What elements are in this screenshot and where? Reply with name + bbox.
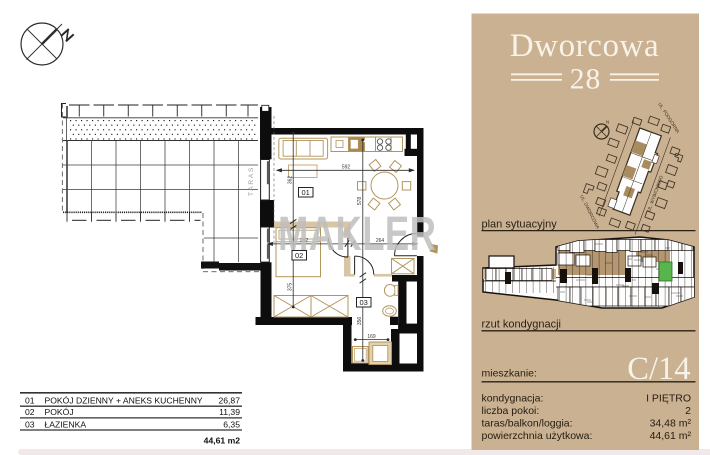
svg-text:28: 28 xyxy=(570,64,602,96)
svg-text:2: 2 xyxy=(685,405,691,417)
svg-text:rzut kondygnacji: rzut kondygnacji xyxy=(482,319,562,331)
svg-text:362: 362 xyxy=(287,176,293,185)
svg-text:MAKLER: MAKLER xyxy=(278,207,436,261)
svg-text:N: N xyxy=(606,120,609,125)
svg-text:liczba pokoi:: liczba pokoi: xyxy=(482,405,540,417)
svg-text:375: 375 xyxy=(287,283,293,292)
svg-text:34,48 m²: 34,48 m² xyxy=(650,418,692,430)
svg-text:I PIĘTRO: I PIĘTRO xyxy=(646,393,691,405)
svg-text:kondygnacja:: kondygnacja: xyxy=(482,393,544,405)
svg-text:578: 578 xyxy=(357,197,363,206)
svg-text:356: 356 xyxy=(357,317,363,326)
svg-text:03: 03 xyxy=(360,298,368,307)
svg-text:02: 02 xyxy=(25,407,35,417)
svg-text:26,87: 26,87 xyxy=(218,395,240,405)
svg-text:44,61 m2: 44,61 m2 xyxy=(204,436,241,446)
svg-text:TARAS: TARAS xyxy=(248,166,255,196)
svg-text:POKÓJ DZIENNY + ANEKS KUCHENNY: POKÓJ DZIENNY + ANEKS KUCHENNY xyxy=(45,395,203,405)
svg-text:mieszkanie:: mieszkanie: xyxy=(482,368,537,380)
svg-text:6,35: 6,35 xyxy=(223,419,240,429)
svg-text:ŁAZIENKA: ŁAZIENKA xyxy=(45,419,87,429)
svg-text:592: 592 xyxy=(342,165,351,171)
svg-text:POKÓJ: POKÓJ xyxy=(45,407,74,417)
svg-text:169: 169 xyxy=(367,334,376,340)
svg-text:44,61 m²: 44,61 m² xyxy=(650,430,692,442)
svg-text:03: 03 xyxy=(25,419,35,429)
svg-text:taras/balkon/loggia:: taras/balkon/loggia: xyxy=(482,418,573,430)
svg-text:plan sytuacyjny: plan sytuacyjny xyxy=(482,219,558,231)
svg-text:11,39: 11,39 xyxy=(219,407,240,417)
svg-text:Dworcowa: Dworcowa xyxy=(510,28,660,64)
svg-text:01: 01 xyxy=(25,395,35,405)
svg-text:01: 01 xyxy=(302,188,310,197)
svg-text:powierzchnia użytkowa:: powierzchnia użytkowa: xyxy=(482,430,593,442)
